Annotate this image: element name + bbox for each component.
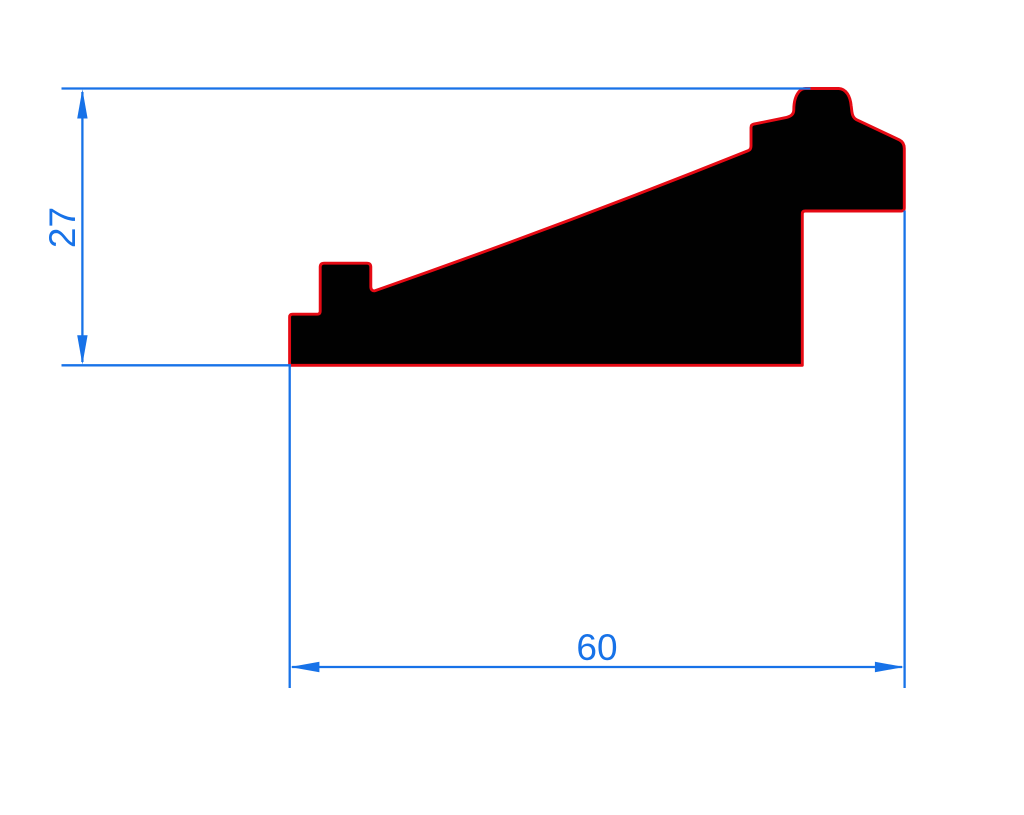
svg-text:27: 27 (42, 207, 83, 248)
svg-text:60: 60 (576, 627, 617, 668)
